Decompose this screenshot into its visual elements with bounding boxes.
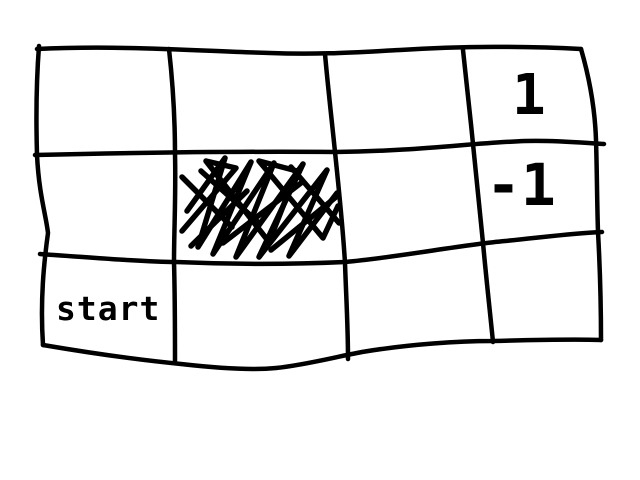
sketch-canvas: 1 -1 start — [0, 0, 640, 480]
grid-left-edge — [36, 46, 48, 345]
grid-vertical-line-1 — [169, 49, 175, 361]
grid-right-edge — [581, 49, 601, 340]
penalty-cell-label: -1 — [486, 156, 556, 214]
scribbled-wall-cell — [182, 158, 339, 257]
reward-cell-label: 1 — [512, 68, 546, 124]
start-cell-label: start — [56, 292, 160, 325]
grid-top-edge — [37, 47, 581, 54]
grid-bottom-edge — [43, 340, 601, 369]
